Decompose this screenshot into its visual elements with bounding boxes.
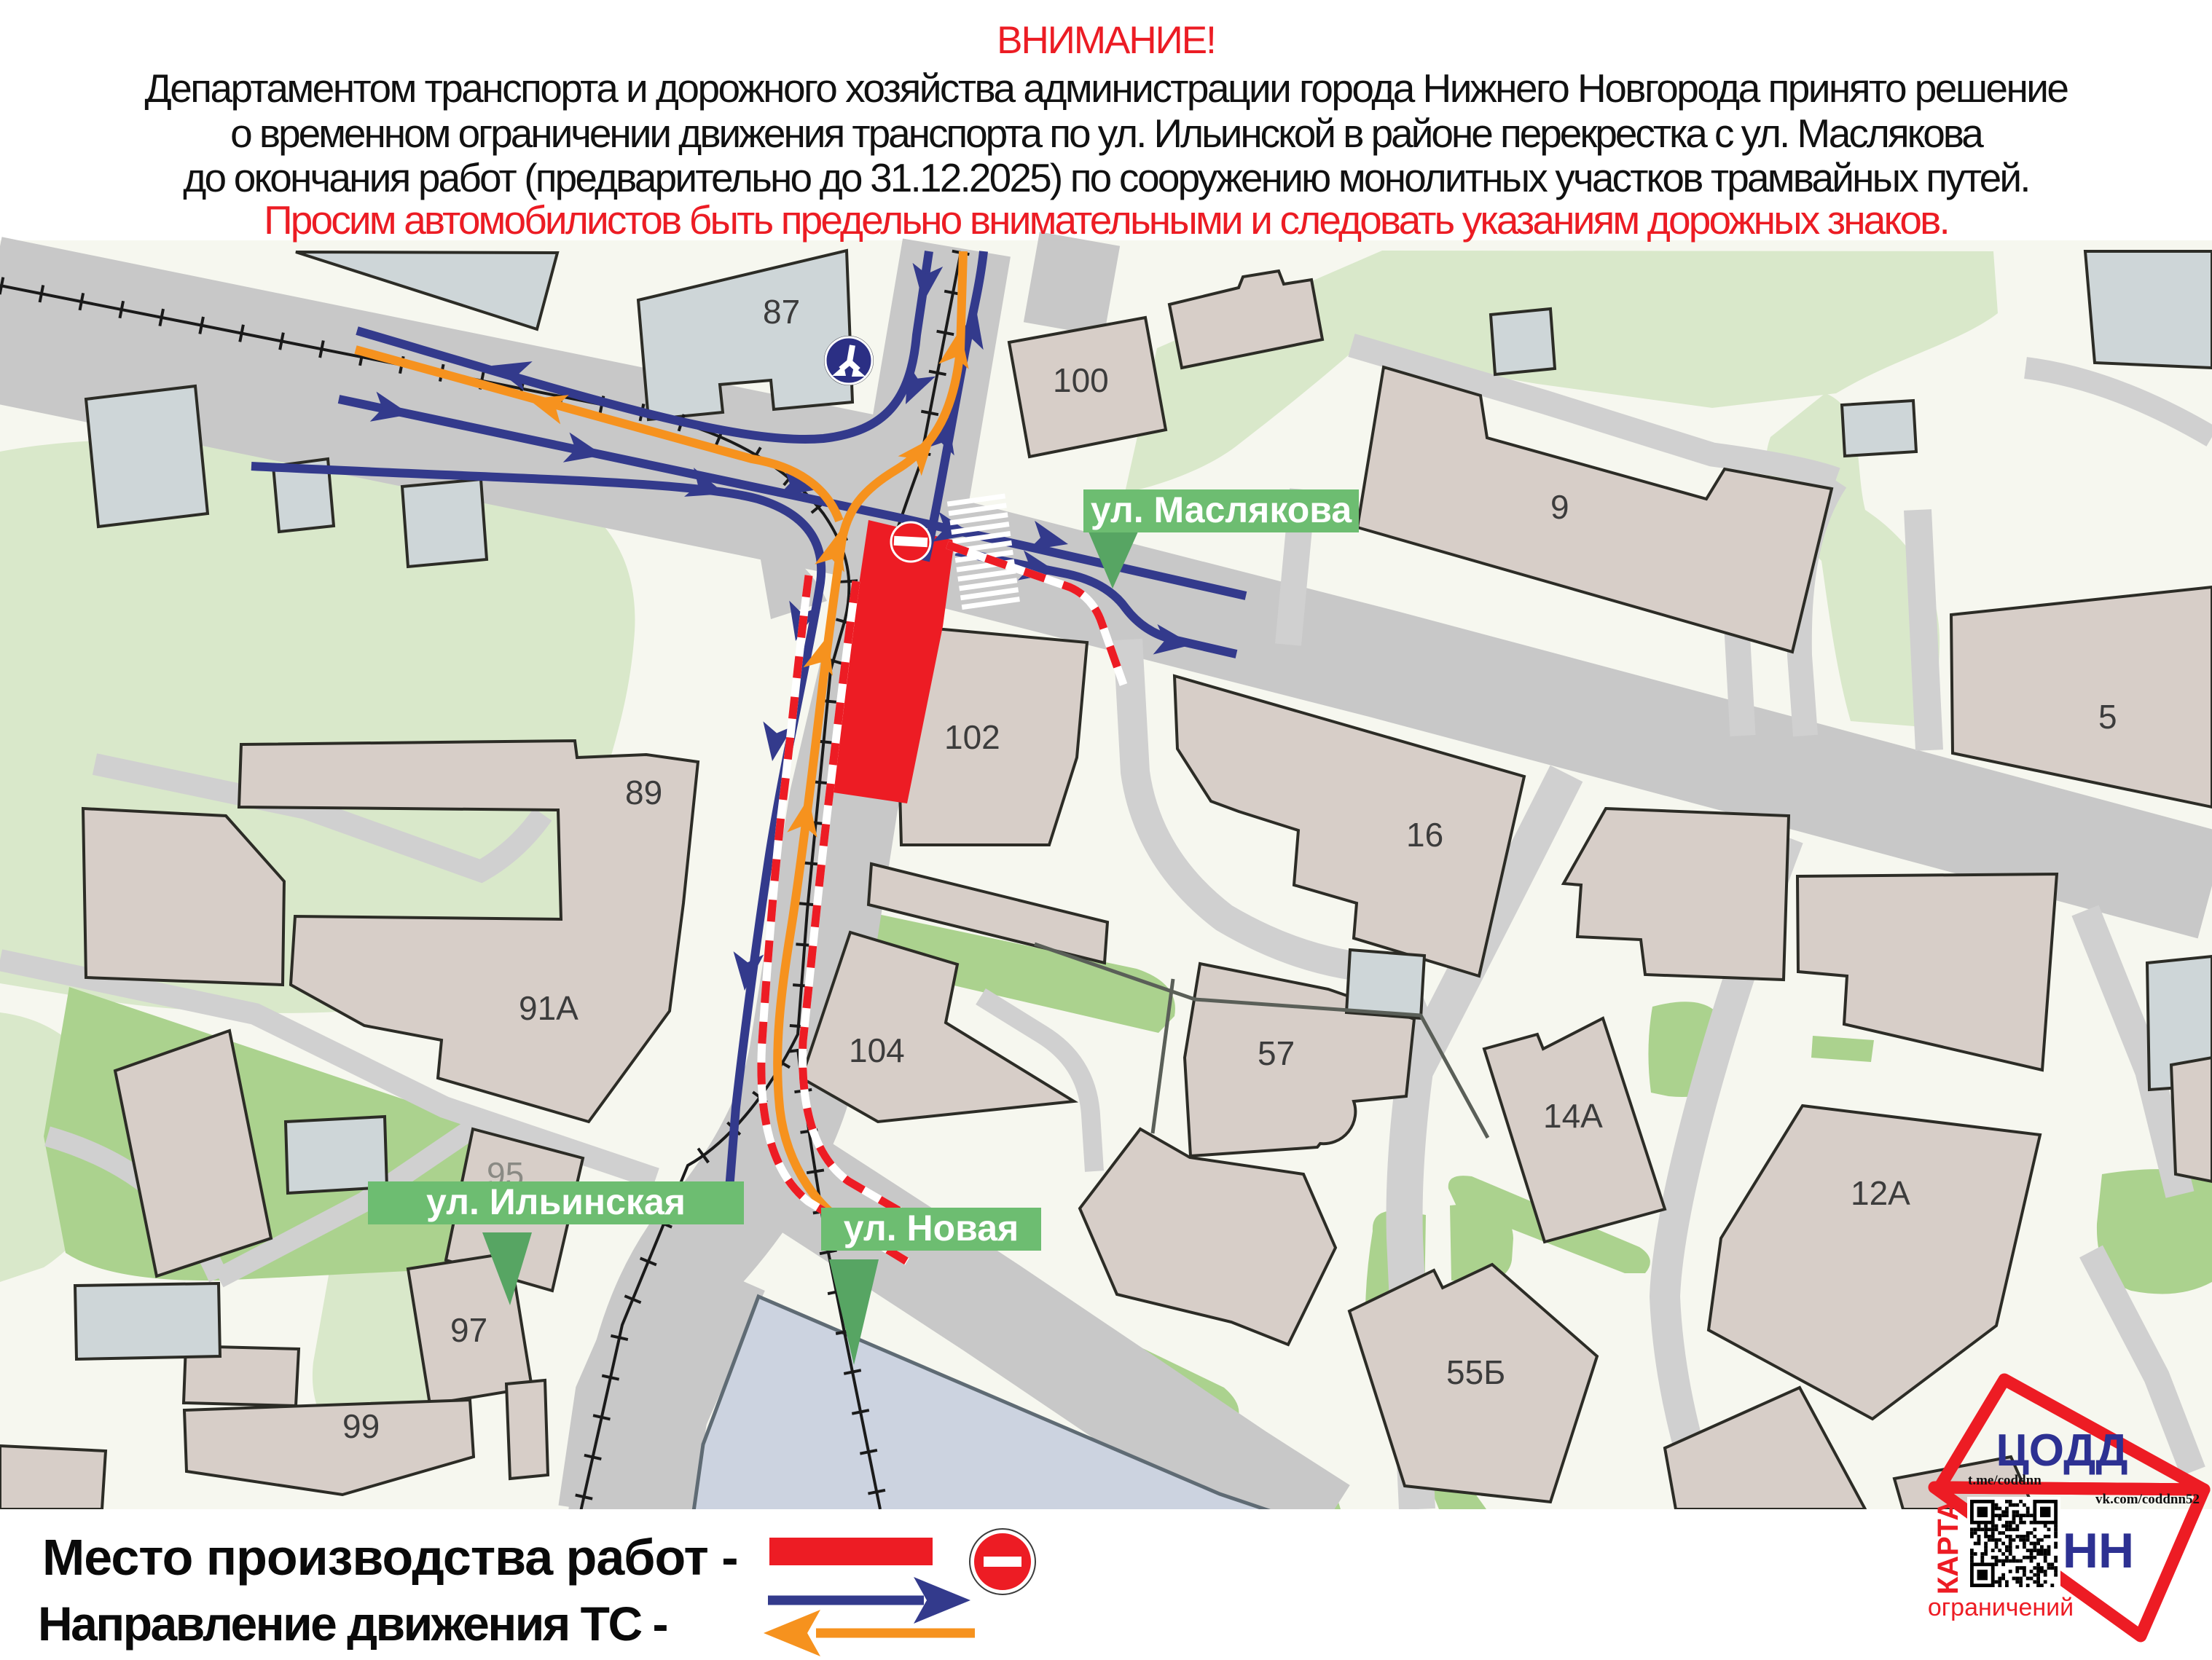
svg-text:57: 57 (1258, 1034, 1295, 1072)
svg-text:Направление движения ТС -: Направление движения ТС - (38, 1597, 667, 1651)
svg-text:ограничений: ограничений (1928, 1594, 2074, 1621)
svg-text:ул. Ильинская: ул. Ильинская (426, 1181, 686, 1222)
svg-text:vk.com/coddnn52: vk.com/coddnn52 (2095, 1492, 2200, 1507)
svg-text:104: 104 (849, 1031, 905, 1069)
svg-text:Место производства работ -: Место производства работ - (42, 1529, 738, 1586)
svg-text:Просим автомобилистов быть пре: Просим автомобилистов быть предельно вни… (264, 197, 1948, 243)
svg-text:КАРТА: КАРТА (1932, 1500, 1964, 1594)
svg-text:t.me/coddnn: t.me/coddnn (1968, 1473, 2042, 1488)
svg-text:о временном ограничении движен: о временном ограничении движения транспо… (230, 111, 1984, 156)
svg-text:ул. Новая: ул. Новая (844, 1208, 1019, 1248)
svg-text:97: 97 (450, 1311, 487, 1349)
svg-text:ЦОДД: ЦОДД (1996, 1425, 2127, 1476)
svg-text:5: 5 (2098, 698, 2117, 736)
svg-text:НН: НН (2063, 1523, 2134, 1578)
svg-text:89: 89 (625, 774, 662, 811)
svg-text:99: 99 (342, 1407, 380, 1445)
svg-text:ВНИМАНИЕ!: ВНИМАНИЕ! (997, 19, 1215, 62)
svg-text:87: 87 (763, 293, 800, 331)
svg-text:Департаментом транспорта и дор: Департаментом транспорта и дорожного хоз… (145, 66, 2068, 111)
svg-text:12А: 12А (1851, 1174, 1910, 1212)
svg-text:16: 16 (1406, 816, 1443, 854)
svg-text:до окончания работ (предварите: до окончания работ (предварительно до 31… (183, 155, 2028, 200)
svg-text:ул. Маслякова: ул. Маслякова (1091, 489, 1352, 530)
svg-text:14А: 14А (1543, 1097, 1603, 1135)
svg-text:91А: 91А (519, 989, 579, 1027)
svg-text:55Б: 55Б (1446, 1353, 1505, 1391)
svg-text:100: 100 (1053, 361, 1109, 399)
svg-text:9: 9 (1550, 488, 1569, 526)
svg-text:102: 102 (944, 718, 1000, 756)
